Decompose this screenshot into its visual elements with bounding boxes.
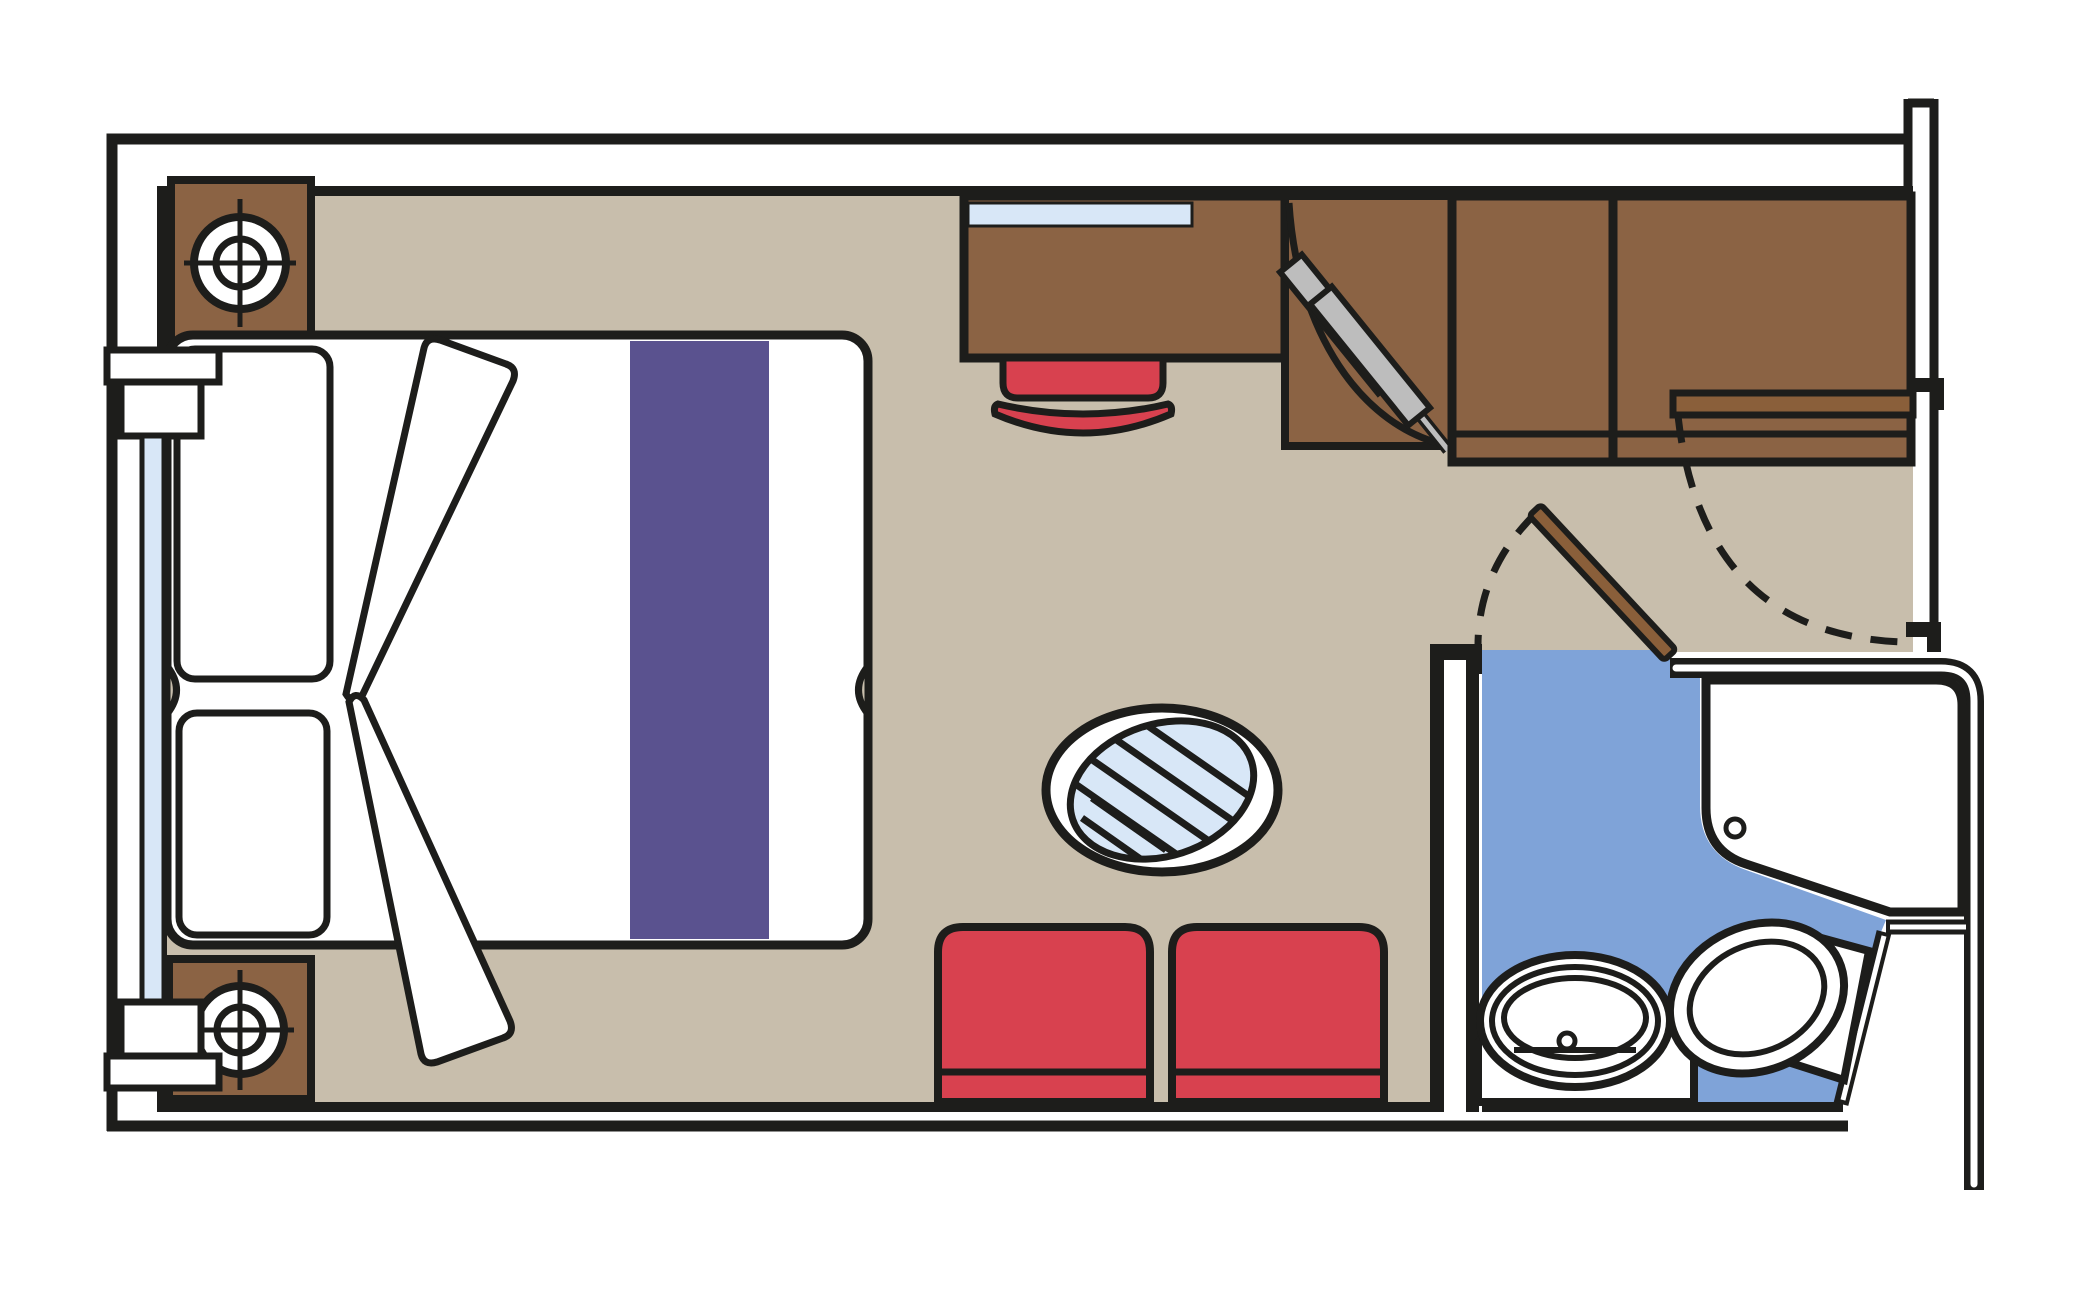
desk-shelf: [968, 203, 1192, 226]
faucet-icon: [1559, 1033, 1575, 1049]
shower-drain-icon: [1726, 819, 1744, 837]
seat-left: [938, 927, 1150, 1102]
stool: [994, 358, 1171, 433]
cabin-floor-plan: [0, 0, 2100, 1299]
floor-plan-canvas: [0, 0, 2100, 1299]
desk: [964, 196, 1285, 358]
bed-seam-notch: [167, 666, 177, 714]
wardrobe-open-door: [1280, 196, 1452, 450]
pillow: [179, 713, 327, 935]
window-glass: [142, 436, 164, 1002]
bed-seam-notch: [859, 666, 869, 714]
seat-right: [1172, 927, 1384, 1102]
nightstand-top: [171, 180, 311, 347]
bed-runner: [630, 341, 769, 939]
